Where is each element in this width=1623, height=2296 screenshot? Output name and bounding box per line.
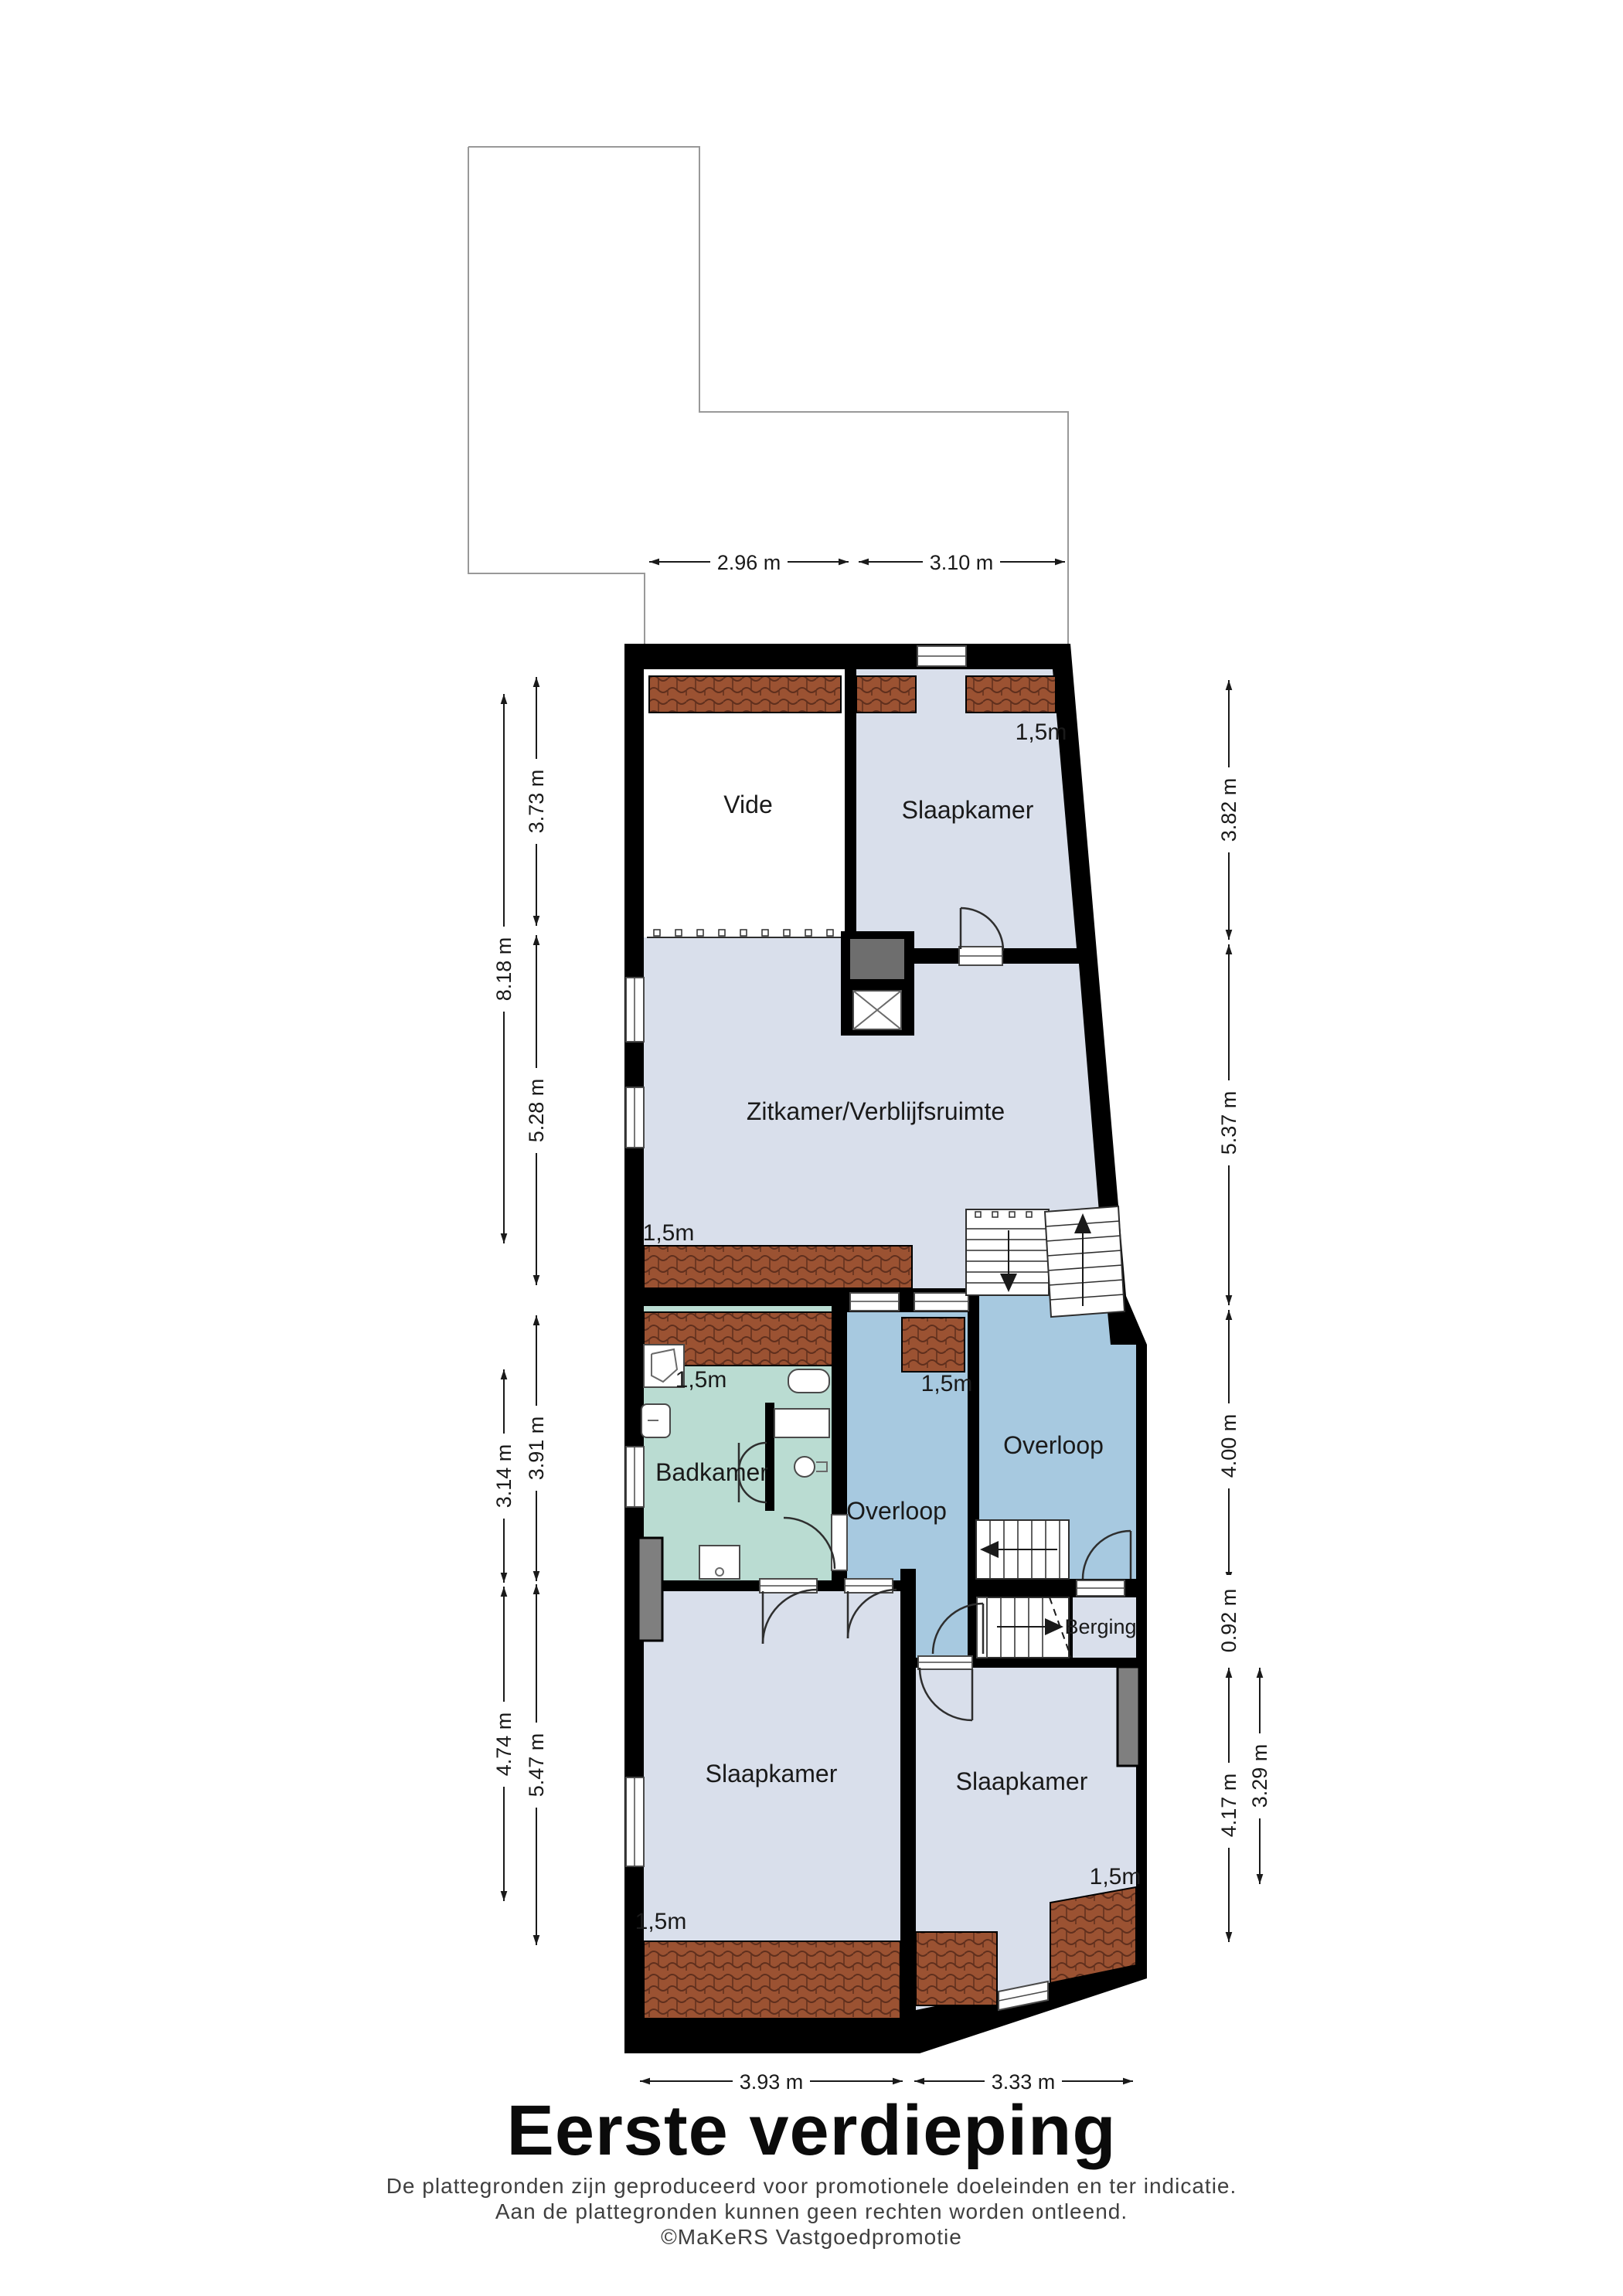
label-berging: Berging [1064,1615,1136,1638]
height-label-2: 1,5m [643,1220,695,1246]
dim-right-outer-3: 4.00 m [1217,1414,1240,1478]
page-title: Eerste verdieping [506,2091,1116,2170]
dim-top-2: 3.10 m [930,551,994,574]
footer-line-3: ©MaKeRS Vastgoedpromotie [661,2225,962,2249]
caption-block: Eerste verdieping De plattegronden zijn … [386,2091,1237,2249]
floorplan-page: Vide Slaapkamer Zitkamer/Verblijfsruimte… [0,0,1623,2296]
label-badkamer: Badkamer [655,1458,768,1486]
label-slaapkamer-top: Slaapkamer [902,796,1034,824]
dim-right-outer-1: 3.82 m [1217,778,1240,842]
dim-left-inner-1: 3.73 m [525,770,548,834]
dim-top-1: 2.96 m [717,551,781,574]
shower-tray [774,1409,829,1437]
label-overloop-right: Overloop [1003,1431,1104,1459]
stairwell-open [966,1209,1049,1295]
vide-railing [647,930,841,937]
sink [794,1457,815,1477]
chimney-left [638,1538,662,1641]
window-top-wall [917,646,966,666]
height-label-5: 1,5m [635,1909,687,1934]
dim-left-outer-3: 4.74 m [492,1713,515,1777]
label-vide: Vide [723,791,772,818]
dim-left-outer-2: 3.14 m [492,1444,515,1509]
label-slaapkamer-left: Slaapkamer [706,1760,838,1787]
height-label-6: 1,5m [1090,1864,1142,1890]
dim-left-inner-3: 3.91 m [525,1417,548,1481]
dim-left-inner-2: 5.28 m [525,1079,548,1143]
height-label-1: 1,5m [1016,719,1067,745]
dim-right-outer-4: 0.92 m [1217,1589,1240,1653]
dim-bottom-1: 3.93 m [740,2070,804,2094]
chimney-right [1118,1667,1139,1766]
dim-left-inner-4: 5.47 m [525,1733,548,1798]
label-slaapkamer-right: Slaapkamer [956,1767,1088,1795]
label-overloop-mid: Overloop [846,1497,947,1525]
footer-line-1: De plattegronden zijn geproduceerd voor … [386,2174,1237,2198]
label-zitkamer: Zitkamer/Verblijfsruimte [747,1097,1005,1125]
height-label-3: 1,5m [675,1367,727,1393]
dim-right-outer-2: 5.37 m [1217,1091,1240,1155]
footer-line-2: Aan de plattegronden kunnen geen rechten… [495,2199,1128,2223]
doorway-stair [977,1597,987,1658]
dim-bottom-2: 3.33 m [992,2070,1056,2094]
bath [788,1369,829,1393]
window-berging-wall [1077,1580,1125,1596]
dim-left-outer-1: 8.18 m [492,937,515,1002]
toilet [699,1546,740,1579]
floorplan-drawing: Vide Slaapkamer Zitkamer/Verblijfsruimte… [0,0,1623,2296]
dim-right-outer-5: 4.17 m [1217,1774,1240,1838]
height-label-4: 1,5m [921,1371,973,1396]
staircase-up [1045,1206,1125,1317]
dim-right-inner-1: 3.29 m [1248,1744,1271,1808]
